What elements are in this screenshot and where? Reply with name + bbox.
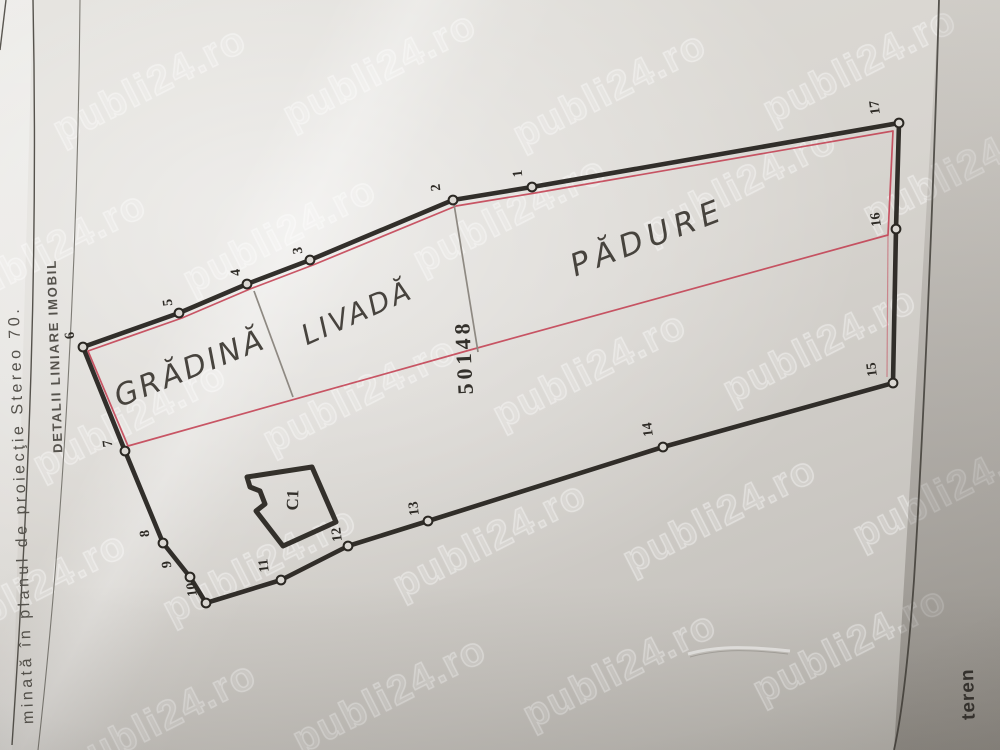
vertex-marker <box>306 256 315 265</box>
corner-table-label: teren <box>957 668 980 720</box>
vertex-label: 14 <box>640 422 657 438</box>
vertex-marker <box>895 119 904 128</box>
vertex-marker <box>449 196 458 205</box>
vertex-label: 6 <box>63 331 79 340</box>
vertex-label: 10 <box>184 582 201 598</box>
vertex-marker <box>528 183 537 192</box>
vertex-marker <box>175 309 184 318</box>
region-label-orchard: LIVADĂ <box>296 272 419 351</box>
vertex-label: 13 <box>406 501 423 517</box>
table-rule-line <box>0 0 6 50</box>
building-label: C1 <box>283 489 303 510</box>
vertex-marker <box>186 573 195 582</box>
photographed-cadastral-plan: publi24.ropubli24.ropubli24.ropubli24.ro… <box>0 0 1000 750</box>
red-measurement-outline <box>88 131 893 446</box>
region-label-forest: PĂDURE <box>565 192 731 284</box>
vertex-label: 1 <box>511 169 527 178</box>
paper-fold-line <box>894 0 939 750</box>
vertex-label: 4 <box>229 268 245 277</box>
vertex-label: 9 <box>160 560 176 569</box>
vertex-marker <box>277 576 286 585</box>
vertex-label: 15 <box>864 362 881 378</box>
vertex-marker <box>892 225 901 234</box>
vertex-marker <box>159 539 168 548</box>
vertex-marker <box>79 343 88 352</box>
parcel-number: 50148 <box>449 319 478 395</box>
vertex-marker <box>243 280 252 289</box>
red-measurement-segment <box>887 235 888 377</box>
vertex-label: 12 <box>329 527 346 543</box>
vertex-label: 2 <box>429 183 445 192</box>
vertex-marker <box>424 517 433 526</box>
vertex-label: 11 <box>256 558 273 573</box>
vertex-label: 7 <box>101 439 117 448</box>
vertex-marker <box>202 599 211 608</box>
vertex-marker <box>344 542 353 551</box>
projection-note: minată în planul de proiecţie Stereo 70. <box>6 306 38 725</box>
details-title: DETALII LINIARE IMOBIL <box>44 259 66 453</box>
vertex-label: 5 <box>161 298 177 307</box>
vertex-marker <box>121 447 130 456</box>
vertex-marker <box>659 443 668 452</box>
vertex-marker <box>889 379 898 388</box>
vertex-label: 16 <box>868 212 885 228</box>
cadastral-sketch: 1 2 3 4 5 6 7 8 9 10 11 12 13 14 15 16 1… <box>0 0 1000 750</box>
vertex-label: 8 <box>138 529 154 538</box>
vertex-label: 3 <box>291 246 307 255</box>
vertex-label: 17 <box>867 100 884 116</box>
